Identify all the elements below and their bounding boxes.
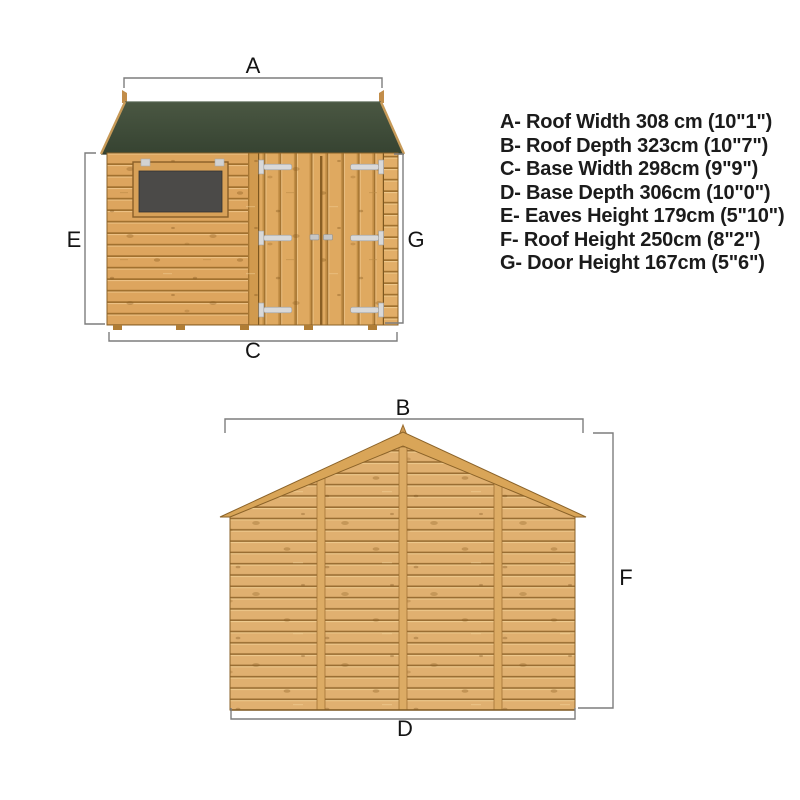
shed-window	[133, 159, 228, 217]
dim-label-C: C	[245, 338, 261, 363]
dim-line-roof-height-F	[578, 433, 613, 708]
shed-roof	[101, 102, 404, 154]
legend-item-d: D- Base Depth 306cm (10"0")	[500, 182, 784, 206]
legend-item-f: F- Roof Height 250cm (8"2")	[500, 229, 784, 253]
window-clip-right	[215, 159, 224, 166]
door-centre-seam	[320, 156, 322, 325]
legend-item-g: G- Door Height 167cm (5"6")	[500, 252, 784, 276]
legend-item-c: C- Base Width 298cm (9"9")	[500, 158, 784, 182]
front-elevation-view: A E G C	[60, 50, 430, 365]
dimension-legend: A- Roof Width 308 cm (10"1") B- Roof Dep…	[500, 111, 784, 276]
legend-item-e: E- Eaves Height 179cm (5"10")	[500, 205, 784, 229]
dim-line-eaves-height-E	[85, 153, 105, 324]
window-clip-left	[141, 159, 150, 166]
dim-line-roof-width-A	[124, 78, 382, 88]
gable-wall	[230, 446, 575, 710]
roof-finial-right	[379, 90, 384, 103]
window-glass	[139, 171, 222, 212]
dim-label-F: F	[619, 565, 632, 590]
roof-finial-left	[122, 90, 127, 103]
floor-bearers	[113, 325, 377, 330]
dim-label-G: G	[407, 227, 424, 252]
legend-item-b: B- Roof Depth 323cm (10"7")	[500, 135, 784, 159]
dim-label-A: A	[246, 53, 261, 78]
dim-label-E: E	[67, 227, 82, 252]
dim-label-B: B	[396, 395, 411, 420]
gable-end-view: B F D	[180, 395, 640, 745]
dim-label-D: D	[397, 716, 413, 741]
shed-dimensions-diagram: A E G C	[0, 0, 800, 800]
legend-item-a: A- Roof Width 308 cm (10"1")	[500, 111, 784, 135]
